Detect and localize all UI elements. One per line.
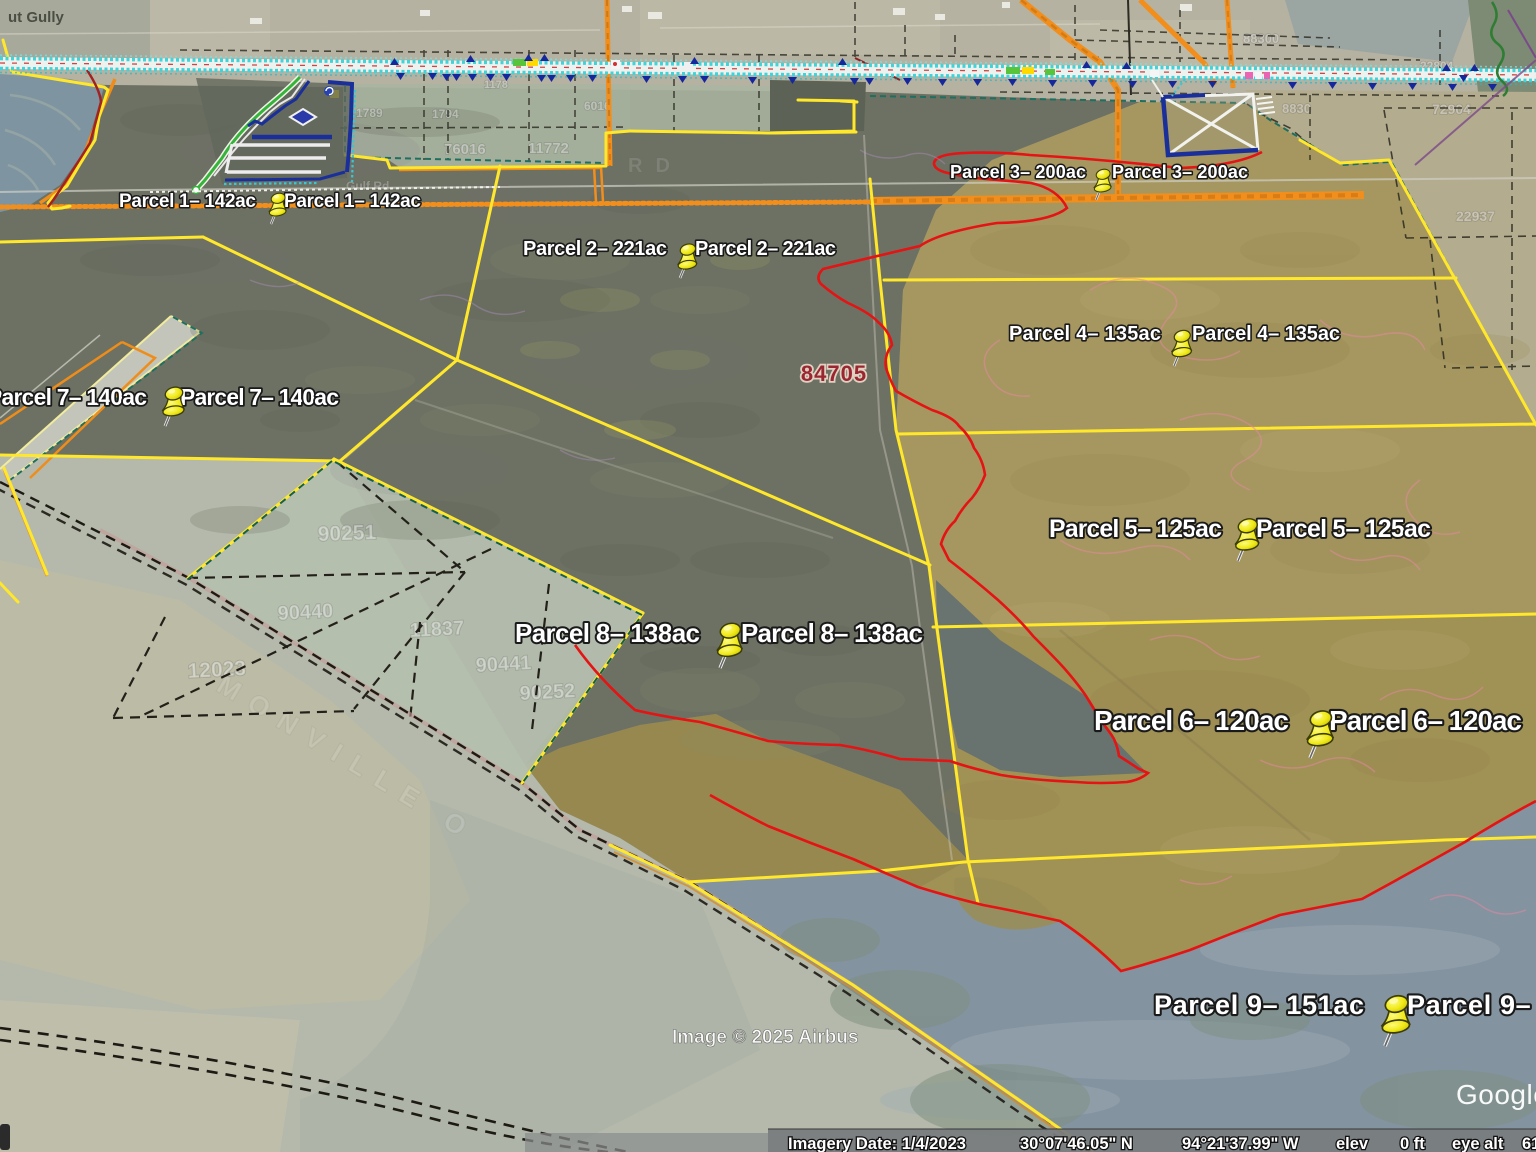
svg-text:Parcel 2– 221ac: Parcel 2– 221ac [523, 238, 667, 260]
svg-text:76016: 76016 [444, 141, 486, 158]
svg-text:90251: 90251 [317, 521, 376, 546]
svg-text:22937: 22937 [1456, 208, 1495, 224]
svg-text:ut Gully: ut Gully [8, 9, 64, 26]
svg-text:Image © 2025 Airbus: Image © 2025 Airbus [672, 1027, 858, 1048]
svg-text:Parcel 1– 142ac: Parcel 1– 142ac [119, 191, 256, 212]
svg-text:Parcel 4– 135ac: Parcel 4– 135ac [1009, 323, 1161, 345]
svg-text:1789: 1789 [356, 106, 383, 120]
svg-text:94°21'37.99" W: 94°21'37.99" W [1182, 1135, 1299, 1152]
svg-text:Parcel 1– 142ac: Parcel 1– 142ac [284, 191, 421, 212]
svg-text:90441: 90441 [475, 652, 532, 677]
svg-text:RD: RD [628, 155, 683, 177]
svg-text:Parcel 9– 151ac: Parcel 9– 151ac [1154, 990, 1364, 1020]
svg-text:1794: 1794 [432, 107, 459, 121]
svg-text:0 ft: 0 ft [1400, 1135, 1425, 1152]
svg-text:Parcel 4– 135ac: Parcel 4– 135ac [1192, 323, 1340, 345]
svg-text:90440: 90440 [277, 600, 334, 625]
svg-text:88300: 88300 [1243, 31, 1279, 46]
svg-text:Parcel 3– 200ac: Parcel 3– 200ac [1112, 162, 1248, 182]
svg-text:Parcel 7– 140ac: Parcel 7– 140ac [180, 384, 339, 410]
svg-text:Parcel 2– 221ac: Parcel 2– 221ac [695, 238, 836, 260]
svg-text:11772: 11772 [528, 140, 569, 157]
svg-text:Parcel 5– 125ac: Parcel 5– 125ac [1256, 515, 1431, 543]
svg-text:90252: 90252 [519, 680, 576, 705]
svg-text:Parcel 9– 151ac: Parcel 9– 151ac [1407, 990, 1536, 1020]
svg-text:61: 61 [1522, 1135, 1536, 1152]
svg-text:Parcel 3– 200ac: Parcel 3– 200ac [950, 162, 1086, 182]
svg-text:elev: elev [1336, 1135, 1369, 1152]
svg-text:Parcel 6– 120ac: Parcel 6– 120ac [1094, 705, 1289, 736]
svg-text:Parcel 5– 125ac: Parcel 5– 125ac [1049, 515, 1222, 543]
svg-text:84705: 84705 [801, 361, 867, 386]
svg-text:1178: 1178 [484, 79, 508, 91]
svg-text:8830: 8830 [1282, 101, 1311, 116]
svg-text:Parcel 6– 120ac: Parcel 6– 120ac [1329, 705, 1522, 736]
svg-text:Parcel 8– 138ac: Parcel 8– 138ac [741, 618, 923, 648]
svg-text:eye alt: eye alt [1452, 1135, 1504, 1152]
svg-text:Google: Google [1456, 1079, 1536, 1110]
svg-text:Parcel 8– 138ac: Parcel 8– 138ac [515, 618, 700, 648]
svg-text:72904: 72904 [1432, 101, 1471, 117]
svg-text:Parcel 7– 140ac: Parcel 7– 140ac [0, 384, 147, 410]
svg-text:30°07'46.05" N: 30°07'46.05" N [1020, 1135, 1133, 1152]
svg-text:Imagery Date: 1/4/2023: Imagery Date: 1/4/2023 [788, 1135, 966, 1152]
